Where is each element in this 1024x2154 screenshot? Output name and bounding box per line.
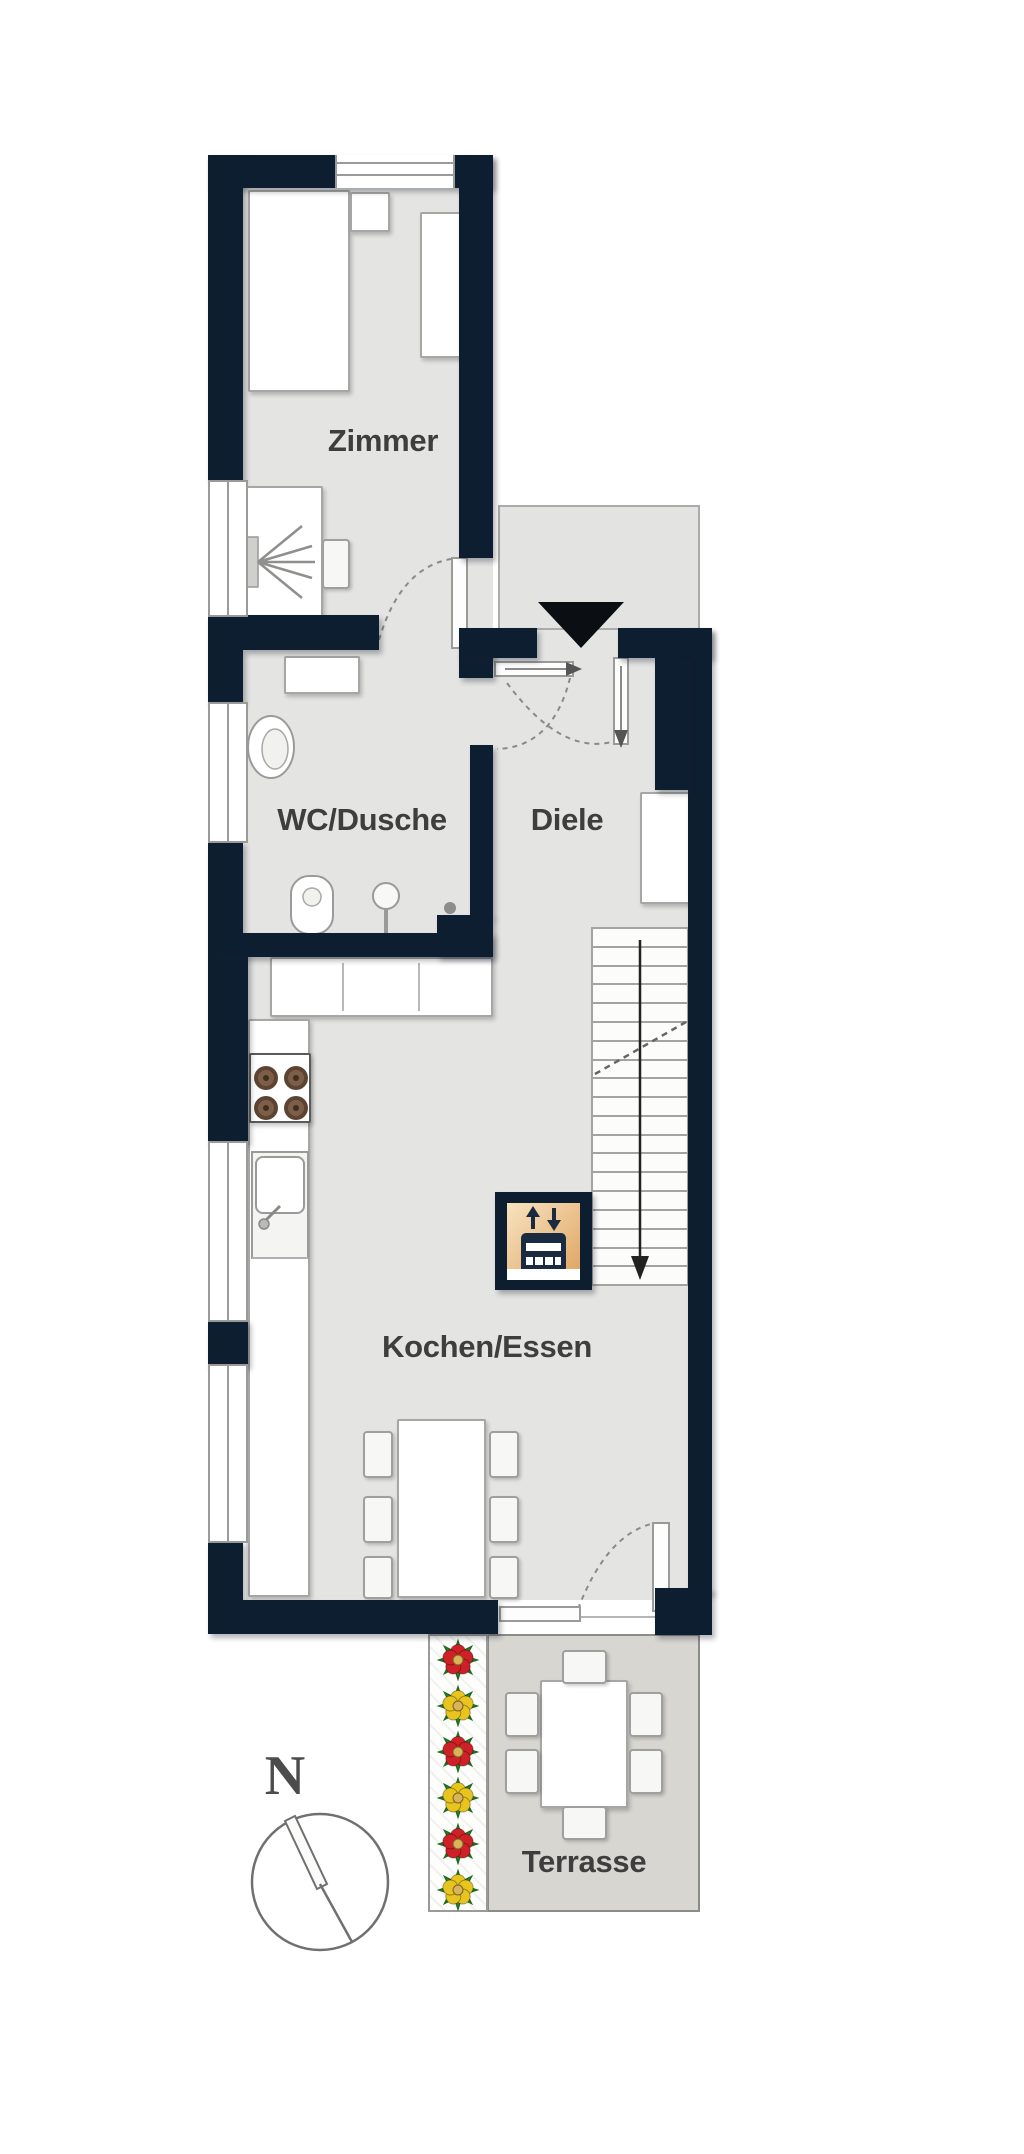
window xyxy=(208,480,248,617)
wall-outer-right xyxy=(688,628,712,1593)
terrace-chair xyxy=(629,1749,663,1794)
wall-left xyxy=(208,953,248,1143)
terrace-chair xyxy=(562,1650,607,1684)
floor-entry-door-gap xyxy=(537,626,618,660)
compass-icon xyxy=(252,1814,388,1950)
kitchen-counter-top-row xyxy=(270,957,493,1017)
compass-north-label: N xyxy=(265,1744,305,1808)
room-label-wc-dusche: WC/Dusche xyxy=(277,802,447,838)
wall-bottom-right-corner xyxy=(655,1588,712,1635)
dining-chair xyxy=(363,1431,393,1478)
bed xyxy=(248,190,350,392)
wall-left xyxy=(208,615,243,704)
dining-chair xyxy=(363,1496,393,1543)
terrace-door-gap xyxy=(498,1600,655,1635)
terrace-chair xyxy=(562,1806,607,1840)
nightstand xyxy=(350,192,390,232)
hall-cupboard xyxy=(640,792,690,904)
wall-entry-left xyxy=(459,628,537,658)
terrace-chair xyxy=(505,1692,539,1737)
window xyxy=(208,1141,248,1322)
wall-wc-corner xyxy=(437,915,493,957)
dining-chair xyxy=(489,1496,519,1543)
wall-entry-stub xyxy=(655,658,688,790)
wall-bottom xyxy=(208,1600,498,1634)
wall-zimmer-bottom xyxy=(243,615,379,650)
room-label-kochen-essen: Kochen/Essen xyxy=(382,1329,592,1365)
dining-table xyxy=(397,1419,486,1598)
wall-wc-diele xyxy=(470,745,493,917)
terrace-chair xyxy=(505,1749,539,1794)
desk-chair xyxy=(322,539,350,589)
floor-plan: Zimmer WC/Dusche Diele Kochen/Essen Terr… xyxy=(0,0,1024,2154)
cabinet-divider xyxy=(342,963,344,1011)
bathroom-shelf xyxy=(284,656,360,694)
room-label-diele: Diele xyxy=(531,802,604,838)
window xyxy=(208,702,248,843)
wall-zimmer-right xyxy=(459,155,493,558)
appliance-box xyxy=(495,1192,592,1290)
flower-bed xyxy=(428,1634,488,1912)
wall-left xyxy=(208,1320,248,1366)
dining-chair xyxy=(489,1556,519,1599)
stairwell-landing xyxy=(498,505,700,630)
terrace-table xyxy=(540,1680,628,1808)
stove-hob xyxy=(249,1053,311,1123)
wall-left xyxy=(208,155,243,482)
dining-chair xyxy=(363,1556,393,1599)
dining-chair xyxy=(489,1431,519,1478)
wall-left xyxy=(208,1541,243,1603)
room-label-terrasse: Terrasse xyxy=(522,1844,647,1880)
cabinet-divider xyxy=(418,963,420,1011)
terrace-chair xyxy=(629,1692,663,1737)
window xyxy=(335,155,455,188)
appliance-box-sill xyxy=(507,1269,580,1280)
window xyxy=(208,1364,248,1543)
room-label-zimmer: Zimmer xyxy=(328,423,438,459)
